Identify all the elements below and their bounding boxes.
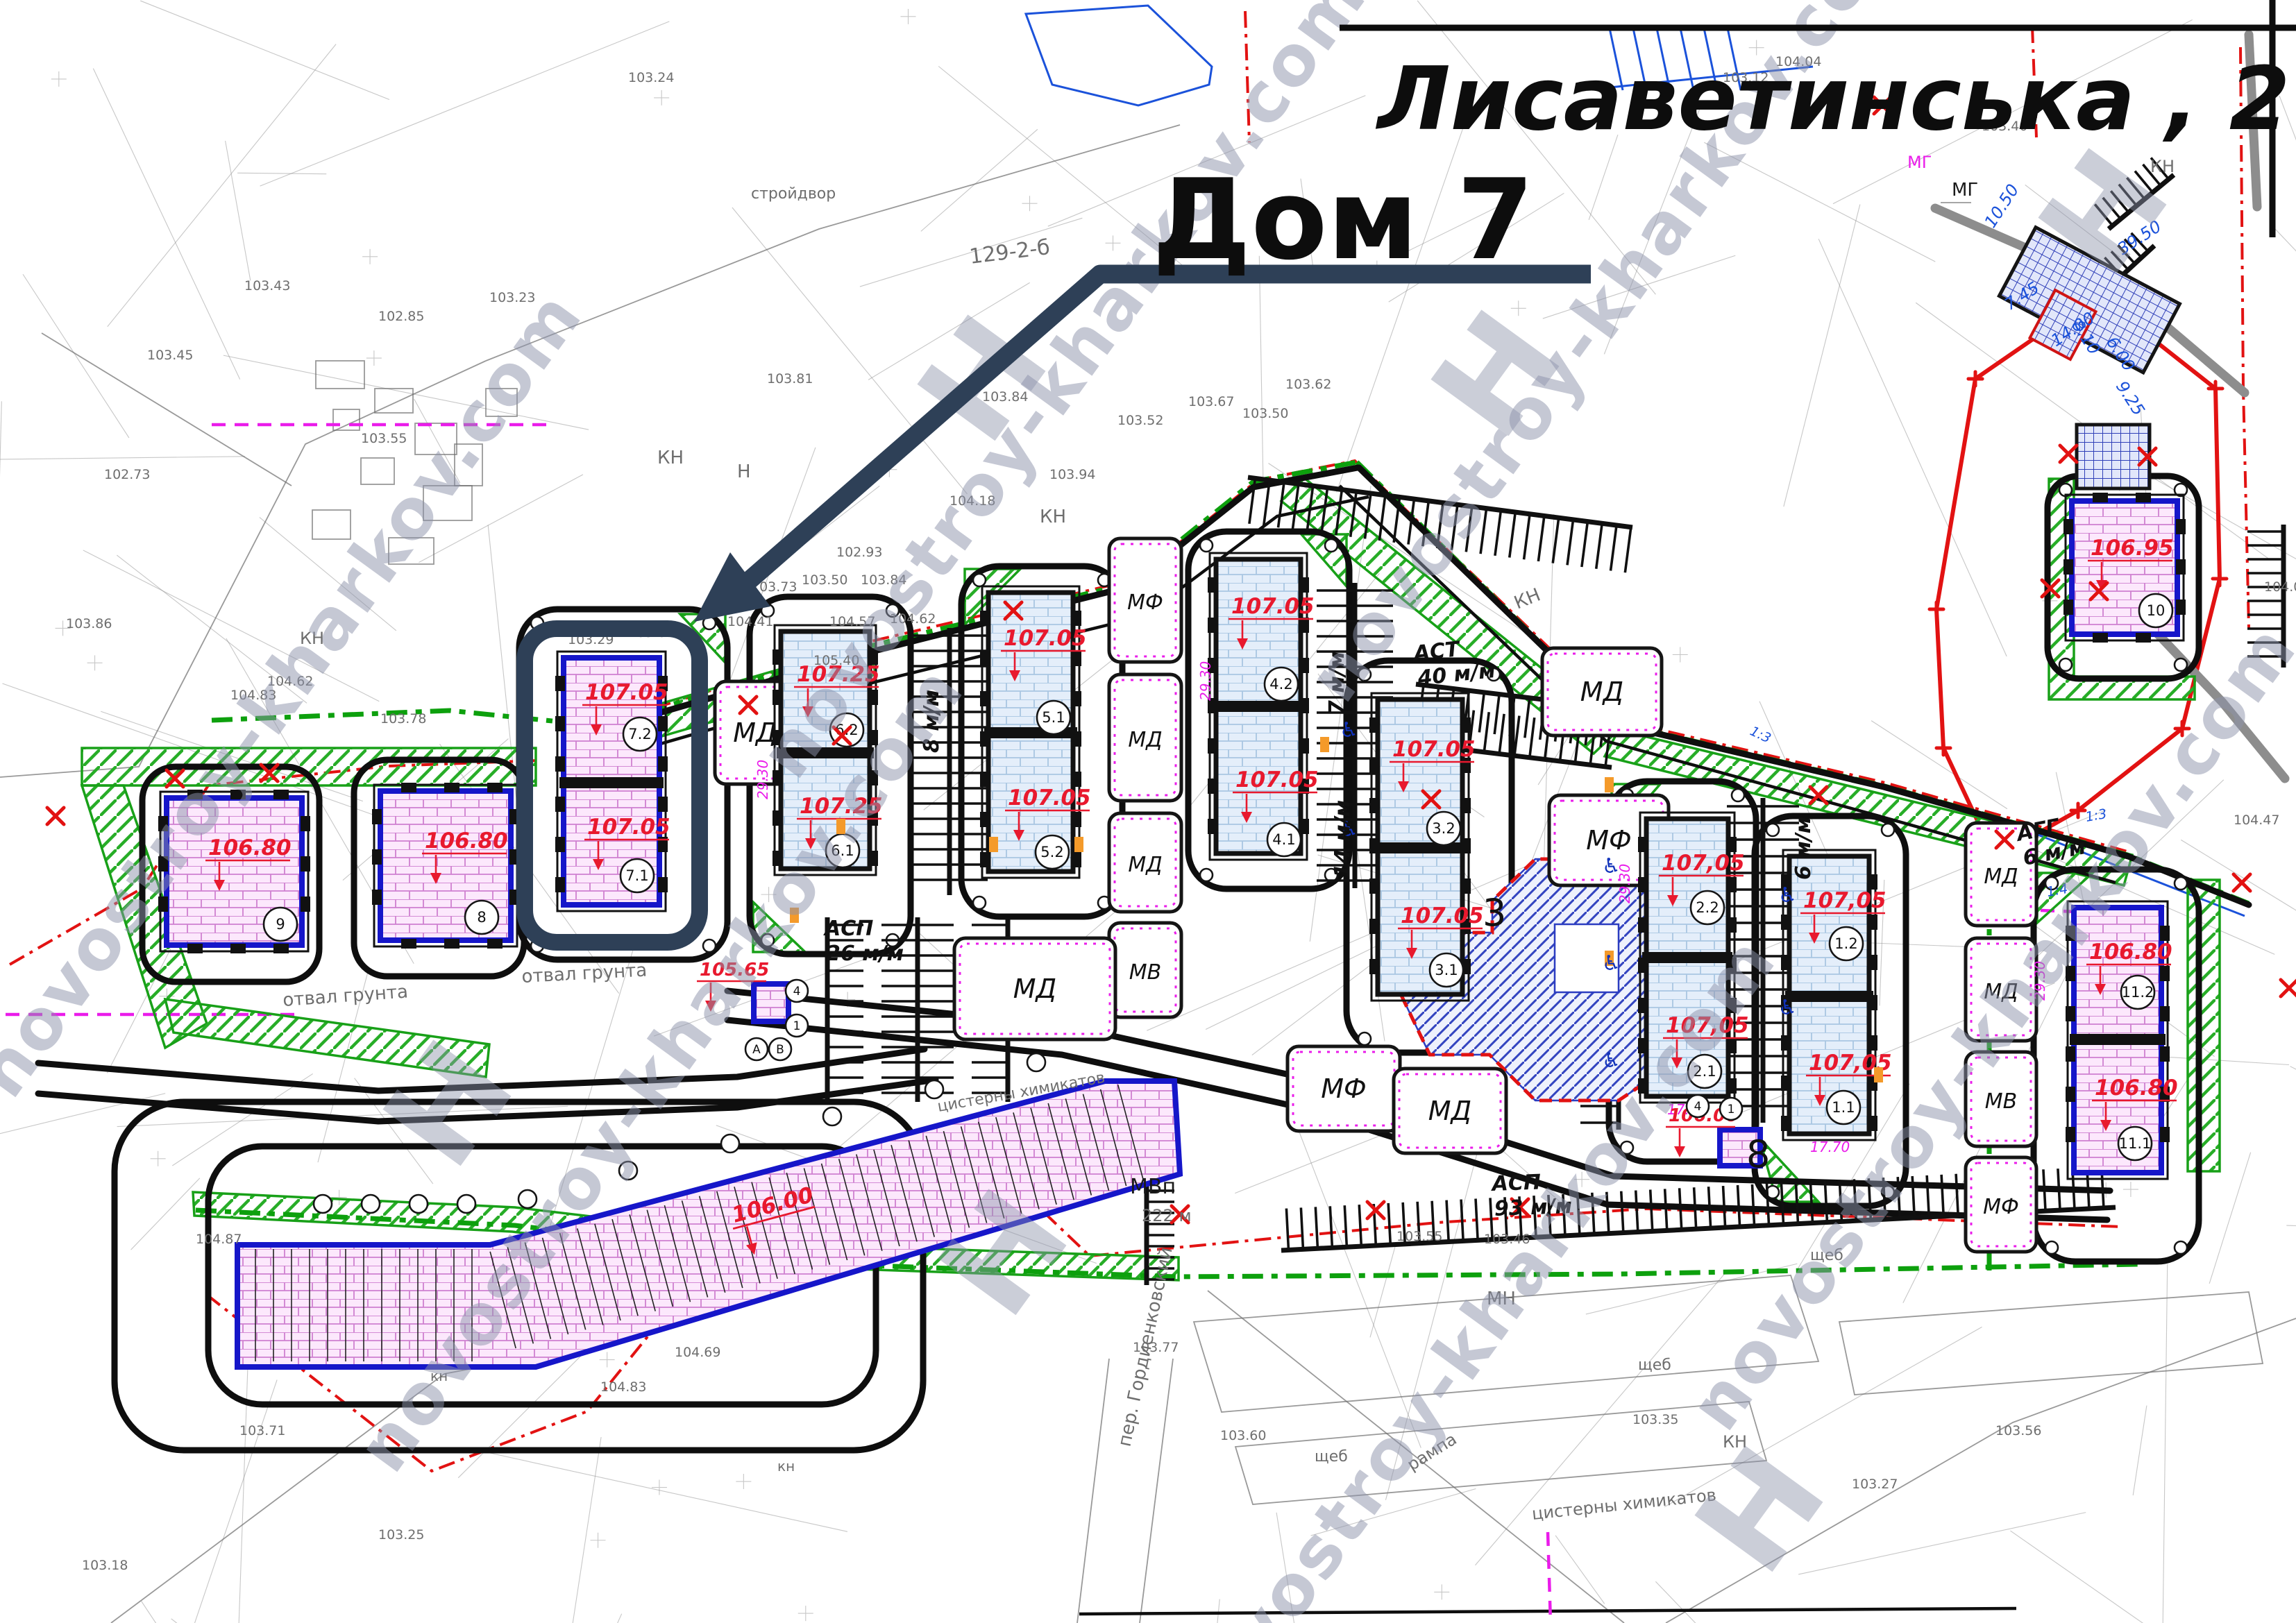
base-dimension: 17.70	[1810, 1139, 1850, 1155]
rect	[1461, 717, 1471, 733]
grid-axis-bubble	[925, 1080, 943, 1098]
parking-capacity: 6 м/м	[1791, 817, 1816, 880]
rect	[1072, 651, 1081, 666]
spot-elevation: 102.93	[836, 545, 882, 560]
road-corner-node	[2175, 1241, 2187, 1254]
rect	[301, 897, 310, 912]
rect	[2160, 1127, 2170, 1142]
parking-label: 14 м/м	[1331, 800, 1355, 878]
rect	[1208, 738, 1217, 754]
zone-box-мв-4: МВ	[1109, 923, 1181, 1017]
rect	[555, 716, 565, 731]
section-number: 11.1	[2119, 1135, 2152, 1152]
rect	[980, 691, 990, 706]
rect	[658, 756, 668, 772]
rect	[1461, 798, 1471, 813]
grid-axis-bubble	[823, 1107, 841, 1125]
road-corner-node	[1358, 1033, 1371, 1045]
handicap-parking-icon: ♿	[1778, 996, 1797, 1020]
spot-elevation: 103.18	[82, 1558, 128, 1573]
rect	[372, 890, 382, 905]
rect	[658, 716, 668, 731]
orange-tick-icon	[989, 837, 998, 852]
rect	[2066, 1006, 2075, 1021]
page-title: Лисаветинська , 2 б	[1375, 48, 2296, 150]
map-text: стройдвор	[751, 185, 836, 203]
road-corner-node	[2175, 658, 2187, 671]
rect	[2160, 1046, 2170, 1062]
spot-elevation: 103.56	[1995, 1423, 2041, 1438]
building-b8: 106.808	[372, 783, 519, 949]
rect	[1208, 779, 1217, 794]
text: 107.05	[1231, 594, 1315, 619]
rect	[1072, 691, 1081, 706]
rect	[372, 809, 382, 824]
rect	[2160, 1006, 2170, 1021]
dimension-magenta: 29.30	[1617, 864, 1633, 903]
spot-elevation: 104.83	[600, 1379, 646, 1395]
rect	[2063, 519, 2073, 534]
map-text: КН	[2150, 157, 2175, 176]
orange-tick-icon	[1074, 837, 1083, 852]
spot-elevation: 103.50	[1242, 406, 1288, 421]
building-b7: 107.05107.057.27.1	[555, 652, 670, 911]
rect	[187, 944, 203, 953]
zone-box-мд-5: МД	[954, 938, 1115, 1039]
spot-elevation: 103.71	[239, 1423, 285, 1438]
rect	[980, 611, 990, 626]
rect	[1727, 1078, 1737, 1094]
rect	[1369, 919, 1379, 934]
section-number: 5.1	[1042, 709, 1065, 726]
grid-axis-bubble	[721, 1135, 739, 1153]
road-corner-node	[1200, 869, 1213, 881]
handicap-parking-icon: ♿	[1602, 1048, 1621, 1073]
rect	[1369, 758, 1379, 773]
spot-elevation: 104.87	[196, 1232, 242, 1247]
text: 107.05	[1401, 903, 1484, 928]
spot-elevation: 103.60	[1220, 1428, 1266, 1443]
spot-elevation: 104.08	[2264, 579, 2296, 595]
zone-box-мф-8: МФ	[1288, 1046, 1400, 1131]
rect	[301, 856, 310, 872]
building-b5: 107.05107.055.15.2	[980, 586, 1091, 878]
road-corner-node	[1882, 824, 1894, 836]
map-text: Н	[737, 461, 751, 482]
spot-elevation: 104.69	[675, 1345, 720, 1360]
spot-elevation: 102.73	[104, 467, 150, 482]
section-number: 2.2	[1696, 899, 1719, 916]
rect	[2063, 600, 2073, 615]
section-divider	[559, 777, 664, 788]
map-text: МГ	[1907, 153, 1932, 172]
zone-label: МФ	[1983, 1195, 2019, 1219]
rect	[401, 939, 416, 949]
rect	[2066, 1127, 2075, 1142]
zone-box-мф-13: МФ	[1966, 1157, 2036, 1252]
zone-label: МД	[1428, 1096, 1471, 1126]
section-number: 11.2	[2122, 984, 2154, 1001]
zone-label: МД	[1128, 728, 1162, 752]
rect	[773, 810, 782, 826]
zone-label: МФ	[1586, 825, 1632, 856]
orange-tick-icon	[1874, 1067, 1883, 1082]
rect	[2176, 559, 2186, 575]
rect	[1781, 1116, 1791, 1131]
text: 107.05	[1392, 737, 1476, 762]
rect	[980, 852, 990, 867]
section-number: 7.1	[625, 867, 648, 884]
rect	[555, 837, 565, 852]
rect	[555, 756, 565, 772]
rect	[1727, 837, 1737, 852]
rect	[1299, 819, 1309, 834]
rect	[1072, 772, 1081, 787]
rect	[1072, 611, 1081, 626]
handicap-parking-icon: ♿	[1778, 883, 1797, 908]
zone-box-мд-9: МД	[1394, 1069, 1506, 1153]
rect	[555, 797, 565, 812]
map-text: КН	[657, 448, 684, 468]
grid-axis-bubble	[457, 1195, 475, 1213]
map-text: 222 м	[1142, 1206, 1192, 1225]
rect	[1369, 959, 1379, 974]
zone-label: МД	[1984, 865, 2018, 889]
zone-box-мд-2: МД	[1109, 674, 1181, 801]
road-corner-node	[973, 897, 986, 909]
map-text: щеб	[1638, 1357, 1671, 1374]
text: 107.05	[585, 680, 668, 705]
rect	[301, 816, 310, 831]
spot-elevation: 104.47	[2234, 813, 2279, 828]
rect	[1299, 577, 1309, 593]
rect	[1868, 915, 1877, 930]
section-number: 4.1	[1272, 831, 1295, 848]
site-numeral: 8	[1746, 1132, 1770, 1176]
rect	[1781, 915, 1791, 930]
section-number: 5.2	[1040, 844, 1063, 860]
rect	[2066, 1046, 2075, 1062]
road-corner-node	[973, 574, 986, 586]
section-divider	[1374, 842, 1467, 853]
section-number: 9	[276, 916, 285, 933]
rect	[1461, 878, 1471, 894]
rect	[1638, 837, 1648, 852]
spot-elevation: 103.86	[66, 616, 112, 631]
parking-type: АСТ	[1411, 637, 1462, 666]
rect	[980, 772, 990, 787]
text: 106.80	[2095, 1076, 2178, 1101]
building-b10: 106.9510	[2063, 493, 2186, 643]
grid-axis-letter: 4	[793, 985, 801, 999]
spot-elevation: 103.25	[378, 1527, 424, 1543]
zone-label: МФ	[1321, 1073, 1367, 1104]
grid-axis-bubble	[314, 1195, 332, 1213]
rect	[868, 851, 878, 866]
road-corner-node	[2175, 877, 2187, 890]
spot-elevation: 102.85	[378, 309, 424, 324]
rect	[273, 790, 289, 799]
building-numeral: 3	[1483, 891, 1506, 935]
section-number: 1.2	[1834, 935, 1857, 952]
grid-axis-letter: 1	[1728, 1103, 1735, 1116]
grid-axis-bubble	[410, 1195, 428, 1213]
text: 107,05	[1662, 851, 1745, 876]
existing-building-grid	[2077, 425, 2150, 488]
rect	[2176, 600, 2186, 615]
grid-axis-letter: В	[776, 1043, 784, 1057]
spot-elevation: 103.52	[1117, 413, 1163, 428]
spot-elevation: 104.41	[727, 614, 773, 629]
spot-elevation: 103.35	[1632, 1412, 1678, 1427]
zone-label: МД	[1128, 853, 1162, 877]
building-b4: 107.05107.054.24.1	[1208, 553, 1319, 860]
road-corner-node	[1200, 539, 1213, 552]
spot-elevation: 103.45	[147, 348, 193, 363]
road-corner-node	[1766, 824, 1779, 836]
zone-box-мф-1: МФ	[1109, 538, 1181, 662]
rect	[1781, 1076, 1791, 1091]
rect	[372, 849, 382, 865]
section-number: 10	[2147, 602, 2166, 619]
section-divider	[2070, 1034, 2166, 1045]
rect	[1369, 798, 1379, 813]
section-number: 3.1	[1435, 962, 1458, 978]
spot-elevation: 103.78	[380, 711, 426, 726]
rect	[1072, 852, 1081, 867]
zone-box-мд-6: МД	[1542, 648, 1662, 736]
rect	[1369, 717, 1379, 733]
zone-label: МД	[1013, 974, 1056, 1004]
green-landscape-band	[2188, 880, 2220, 1171]
rect	[401, 783, 416, 792]
map-text: кн	[777, 1458, 795, 1475]
rect	[1208, 577, 1217, 593]
road-corner-node	[1732, 789, 1744, 801]
rect	[2136, 633, 2151, 643]
spot-elevation: 103.24	[628, 70, 674, 85]
parking-capacity: 26 м/м	[826, 942, 904, 966]
grid-axis-letter: А	[752, 1043, 761, 1057]
rect	[444, 783, 459, 792]
map-text: КН	[1040, 507, 1066, 527]
rect	[1868, 955, 1877, 970]
rect	[273, 944, 289, 953]
text: 107.05	[587, 815, 670, 840]
parking-label: 6 м/м	[1791, 817, 1816, 880]
rect	[1208, 819, 1217, 834]
zone-label: МФ	[1127, 590, 1163, 615]
site-plan-map: МДМФМДМДМВМДМДМФМФМДМДМДМВМФ 106.809106.…	[0, 0, 2296, 1623]
grid-axis-letter: 1	[793, 1019, 801, 1033]
text: 107.05	[1004, 626, 1087, 651]
dimension-magenta: 29.30	[754, 760, 771, 799]
road-corner-node	[2045, 1241, 2058, 1254]
spot-elevation: 103.27	[1852, 1477, 1898, 1492]
section-divider	[1212, 701, 1305, 712]
section-number: 4.2	[1269, 676, 1292, 692]
rect	[2063, 559, 2073, 575]
parking-capacity: 14 м/м	[1331, 800, 1355, 878]
rect	[1868, 874, 1877, 890]
rect	[555, 877, 565, 892]
spot-elevation: 103.55	[361, 431, 407, 446]
rect	[2160, 926, 2170, 941]
text: 107.05	[1235, 767, 1319, 792]
rect	[230, 944, 246, 953]
parking-type: АСП	[823, 917, 873, 941]
grid-axis-bubble	[362, 1195, 380, 1213]
rect	[2176, 519, 2186, 534]
rect	[773, 770, 782, 785]
spot-elevation: 103.67	[1188, 394, 1234, 409]
rect	[2160, 966, 2170, 981]
text: 106.95	[2091, 536, 2174, 561]
site-plan-page: МДМФМДМДМВМДМДМФМФМДМДМДМВМФ 106.809106.…	[0, 0, 2296, 1623]
road-corner-node	[1325, 539, 1337, 552]
section-number: 7.2	[628, 726, 651, 742]
rect	[658, 797, 668, 812]
rect	[2136, 493, 2151, 502]
spot-elevation: 103.50	[802, 572, 847, 588]
spot-elevation: 103.62	[1285, 377, 1331, 392]
rect	[487, 939, 503, 949]
rect	[658, 877, 668, 892]
zone-label: МВ	[1129, 960, 1161, 985]
rect	[1072, 812, 1081, 827]
rect	[444, 939, 459, 949]
section-number: 1.1	[1832, 1099, 1855, 1116]
rect	[487, 783, 503, 792]
section-number: 8	[477, 909, 486, 926]
section-number: 3.2	[1432, 820, 1455, 837]
section-divider	[1785, 991, 1873, 1002]
orange-tick-icon	[1605, 777, 1614, 792]
rect	[1638, 877, 1648, 892]
rect	[1299, 738, 1309, 754]
rect	[1781, 1035, 1791, 1051]
rect	[1727, 877, 1737, 892]
handicap-parking-icon: ♿	[1602, 951, 1621, 976]
dom7-label: Дом 7	[1152, 155, 1534, 284]
handicap-parking-icon: ♿	[1340, 718, 1358, 742]
rect	[1638, 998, 1648, 1013]
rect	[1208, 618, 1217, 633]
zone-box-мд-3: МД	[1109, 813, 1181, 912]
spot-elevation: 103.81	[767, 371, 813, 386]
rect	[2093, 633, 2108, 643]
spot-elevation: 103.43	[244, 278, 290, 294]
text: 106.80	[425, 829, 508, 853]
dimension-magenta: 29.30	[1197, 661, 1214, 701]
zone-label: МД	[1580, 677, 1623, 707]
rect	[1868, 1035, 1877, 1051]
spot-elevation: 103.55	[1396, 1229, 1442, 1244]
rect	[1369, 878, 1379, 894]
rect	[980, 812, 990, 827]
building-b1: 107,05107,051.21.117.70	[1781, 850, 1892, 1155]
orange-tick-icon	[1320, 737, 1329, 752]
text: 107,05	[1803, 888, 1886, 913]
rect	[2093, 493, 2108, 502]
rect	[980, 651, 990, 666]
grid-axis-bubble	[1027, 1053, 1045, 1071]
map-text: МГ	[1952, 180, 1978, 201]
rect	[1638, 917, 1648, 933]
rect	[2066, 1087, 2075, 1102]
rect	[773, 649, 782, 665]
road-corner-node	[2059, 658, 2072, 671]
map-text: МВп	[1130, 1175, 1176, 1199]
rect	[555, 676, 565, 691]
text: 107.05	[1008, 785, 1091, 810]
spot-elevation: 103.94	[1049, 467, 1095, 482]
